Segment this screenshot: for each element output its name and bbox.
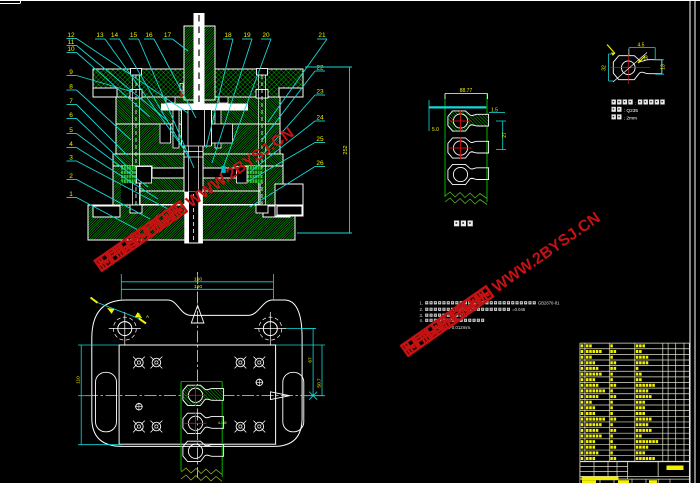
svg-text:14: 14	[111, 32, 119, 39]
svg-text:15: 15	[130, 32, 138, 39]
svg-text:27: 27	[502, 132, 508, 138]
svg-text:190: 190	[194, 284, 202, 290]
svg-text:1: 1	[69, 191, 73, 198]
svg-text:A: A	[146, 314, 149, 319]
svg-text:5: 5	[69, 127, 73, 134]
svg-text:13: 13	[661, 64, 667, 70]
svg-text:7: 7	[69, 98, 73, 105]
svg-text:67: 67	[308, 357, 314, 363]
svg-text:24: 24	[316, 115, 324, 122]
svg-text:: Q235: : Q235	[624, 108, 639, 114]
svg-text:21: 21	[318, 32, 326, 39]
svg-text:17: 17	[164, 32, 172, 39]
svg-text:50.7: 50.7	[317, 378, 323, 388]
svg-text:20: 20	[262, 32, 270, 39]
svg-text:9: 9	[69, 69, 73, 76]
svg-text:5.0: 5.0	[432, 127, 439, 133]
svg-text:11: 11	[68, 39, 75, 46]
svg-text:4.: 4.	[420, 318, 424, 323]
svg-text:4.5: 4.5	[638, 43, 645, 49]
svg-text:2.: 2.	[420, 307, 424, 312]
svg-text::: :	[635, 102, 636, 107]
svg-text:150: 150	[194, 276, 202, 282]
svg-text:6: 6	[69, 112, 73, 119]
svg-text:25: 25	[316, 136, 324, 143]
svg-text:26: 26	[316, 160, 324, 167]
svg-text:4: 4	[69, 141, 73, 148]
svg-text:88.77: 88.77	[460, 88, 473, 94]
svg-text:19: 19	[243, 32, 251, 39]
svg-text:3: 3	[69, 155, 73, 162]
svg-text:16: 16	[145, 32, 153, 39]
svg-text:2: 2	[69, 173, 73, 180]
svg-text:22: 22	[316, 65, 324, 72]
svg-text:12: 12	[67, 32, 75, 39]
svg-text:8: 8	[69, 84, 73, 91]
svg-text:=0.046: =0.046	[512, 307, 526, 312]
svg-text:13: 13	[96, 32, 104, 39]
svg-text:1.: 1.	[420, 300, 424, 305]
svg-text:18: 18	[224, 32, 232, 39]
svg-text:23: 23	[316, 89, 324, 96]
svg-text:110: 110	[76, 376, 82, 384]
svg-text:10: 10	[67, 46, 75, 53]
svg-text:32: 32	[602, 65, 608, 71]
svg-text:252: 252	[343, 145, 349, 154]
svg-text:: 2mm: : 2mm	[624, 115, 637, 121]
svg-text:GB2870-81: GB2870-81	[538, 300, 560, 305]
